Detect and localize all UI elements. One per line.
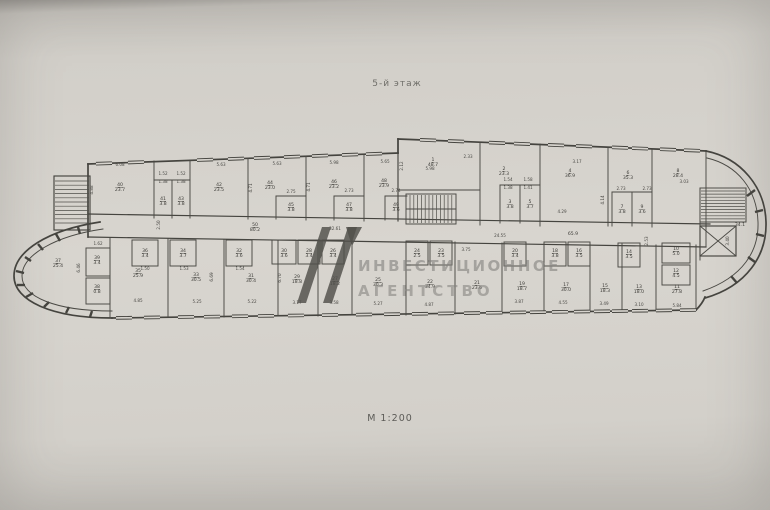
dimension-label: 5.27	[373, 301, 383, 306]
dimension-label: 5.25	[192, 299, 202, 304]
room-label: 473.8	[345, 202, 352, 213]
dimension-label: 3.49	[599, 301, 609, 306]
dimension-label: 4.85	[133, 298, 143, 303]
dimension-label: 1.52	[158, 171, 168, 176]
dimension-label: 32.61	[329, 226, 341, 231]
room-label: 303.6	[280, 248, 287, 259]
room-label: 53.7	[526, 199, 533, 210]
room-label: 263.4	[329, 248, 336, 259]
dimension-label: 6.69	[209, 272, 214, 282]
watermark-line1: ИНВЕСТИЦИОННОЕ	[358, 257, 561, 275]
photo-background: 5-й этаж	[0, 0, 770, 510]
dimension-label: 1.41	[523, 185, 533, 190]
room-label: 2918.8	[292, 274, 302, 285]
room-label: 393.4	[93, 255, 100, 266]
corridor-walls	[88, 214, 710, 247]
watermark-line2: АГЕНТСТВО	[358, 282, 494, 300]
dimension-label: 3.87	[514, 299, 524, 304]
room-label: 4623.2	[329, 179, 339, 190]
dimension-label: 4.29	[557, 209, 567, 214]
room-label: 4223.5	[214, 182, 224, 193]
room-label: 493.6	[392, 202, 399, 213]
room-label: 93.6	[638, 204, 645, 215]
dimension-label: 2.73	[344, 188, 354, 193]
dimension-label: 1.58	[523, 177, 533, 182]
floor-plan-drawing: 4023.7413.8433.84223.54423.0453.84623.24…	[0, 0, 770, 510]
room-label: 65.9	[568, 231, 578, 237]
room-label: 1518.3	[600, 283, 610, 294]
room-label: 363.4	[141, 248, 148, 259]
dimension-label: 2.75	[286, 189, 296, 194]
room-label: 283.4	[305, 248, 312, 259]
room-label: 380.8	[93, 284, 100, 295]
dimension-label: 3.03	[679, 179, 689, 184]
room-label: 1918.7	[517, 281, 527, 292]
room-label: 1127.8	[672, 284, 682, 295]
dimension-label: 3.10	[634, 302, 644, 307]
dimension-label: 2.50	[156, 220, 161, 230]
dimension-label: 3.17	[572, 159, 582, 164]
dimension-label: 2.53	[644, 236, 649, 246]
dimension-label: 4.71	[306, 182, 311, 192]
dimension-label: 6.70	[277, 273, 282, 283]
dimension-label: 2.74	[391, 188, 401, 193]
dimension-label: 2.12	[399, 161, 404, 171]
dimension-label: 5.65	[380, 159, 390, 164]
dimension-label: 5.98	[329, 160, 339, 165]
scale-label: М 1:200	[330, 413, 450, 424]
room-label: 635.3	[623, 170, 633, 181]
room-label: 4423.0	[265, 180, 275, 191]
exterior-stairs-left-outline	[54, 176, 90, 230]
room-label: 436.9	[565, 168, 575, 179]
room-label: 34.1	[735, 222, 745, 228]
dimension-label: 4.87	[424, 302, 434, 307]
dimension-label: 1.54	[503, 177, 513, 182]
dimension-label: 6.46	[76, 263, 81, 273]
room-label: 143.5	[625, 249, 632, 260]
room-label: 1730.0	[561, 282, 571, 293]
dimension-label: 1.38	[176, 179, 186, 184]
dimension-label: 4.14	[600, 195, 605, 205]
dimension-label: 1.54	[235, 266, 245, 271]
room-label: 433.8	[177, 196, 184, 207]
dimension-label: 1.53	[179, 266, 189, 271]
dimension-label: 5.84	[672, 303, 682, 308]
room-label: 453.8	[287, 202, 294, 213]
dimension-label: 1.62	[93, 241, 103, 246]
dimension-label: 6.08	[115, 162, 125, 167]
room-label: 3725.4	[53, 258, 63, 269]
room-label: 828.4	[673, 168, 683, 179]
room-label: 105.0	[672, 246, 679, 257]
dimension-label: 1.50	[140, 266, 150, 271]
dimension-label: 5.98	[425, 166, 435, 171]
dimension-label: 1.38	[158, 179, 168, 184]
dimension-label: 2.33	[463, 154, 473, 159]
room-label: 3330.5	[191, 272, 201, 283]
dimension-label: 4.88	[89, 185, 94, 195]
dimension-label: 5.22	[247, 299, 257, 304]
room-label: 413.8	[159, 196, 166, 207]
dimension-label: 1.52	[176, 171, 186, 176]
dimension-label: 2.73	[642, 186, 652, 191]
room-label: 223.3	[499, 166, 509, 177]
dimension-label: 5.63	[272, 161, 282, 166]
room-label: 33.8	[506, 199, 513, 210]
room-label: 323.6	[235, 248, 242, 259]
room-label: 5080.2	[250, 222, 260, 233]
dimension-label: 4.71	[248, 183, 253, 193]
dimension-label: 24.55	[494, 233, 506, 238]
dimension-label: 2.73	[616, 186, 626, 191]
room-label: 124.5	[672, 268, 679, 279]
room-label: 343.7	[179, 248, 186, 259]
room-label: 3130.4	[246, 273, 256, 284]
dimension-label: 4.55	[558, 300, 568, 305]
room-label: 1318.0	[634, 284, 644, 295]
room-label: 4823.9	[379, 178, 389, 189]
room-label: 73.8	[618, 204, 625, 215]
right-stairs-outline	[700, 188, 746, 222]
dimension-label: 1.38	[503, 185, 513, 190]
room-label: 4023.7	[115, 182, 125, 193]
dimension-label: 3.40	[725, 236, 730, 246]
dimension-label: 5.63	[216, 162, 226, 167]
dimension-label: 3.75	[461, 247, 471, 252]
room-label: 163.5	[575, 248, 582, 259]
